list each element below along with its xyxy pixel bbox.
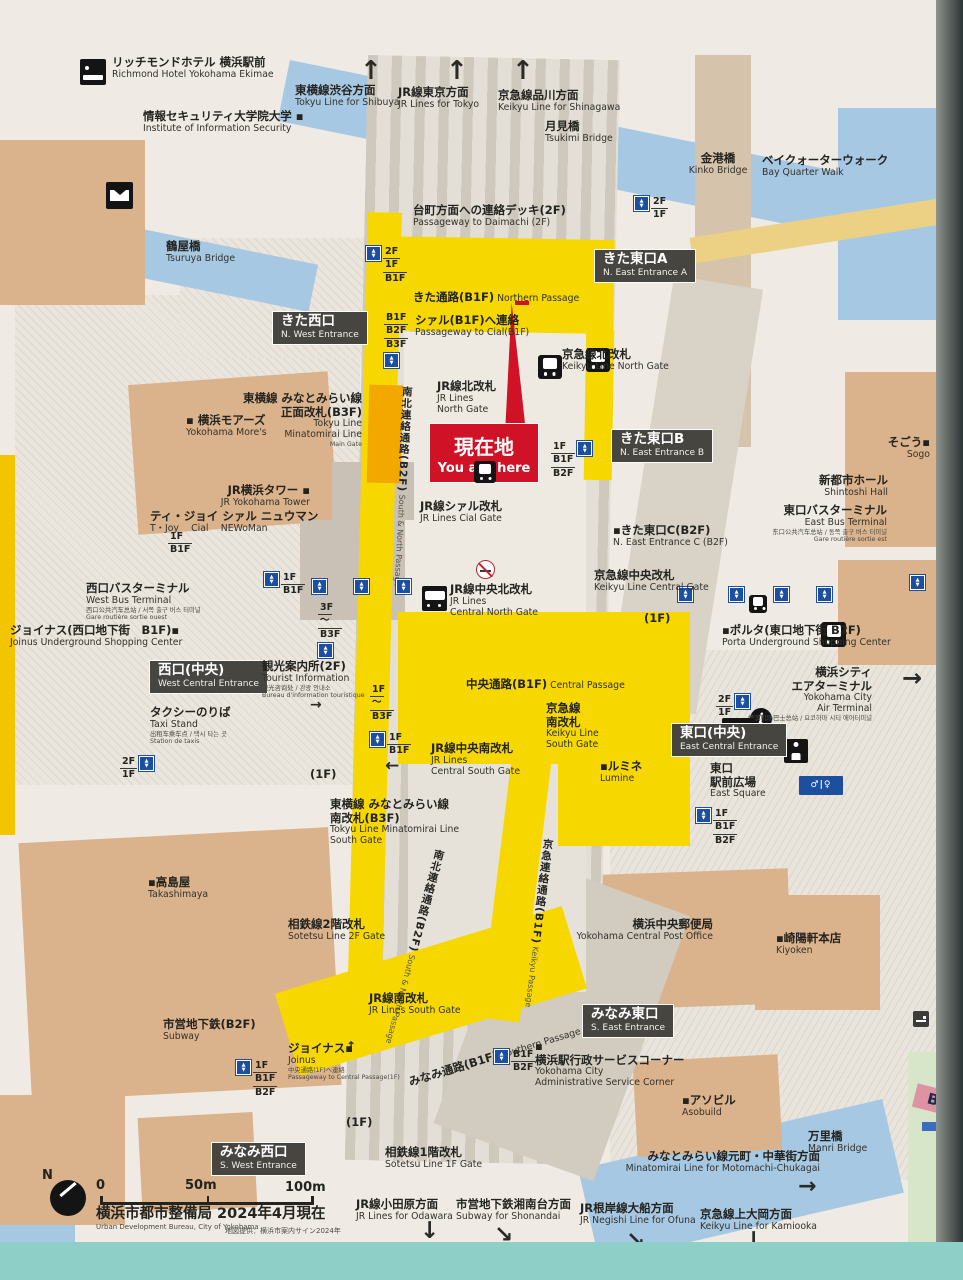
elevator-icon: ▲▼ <box>735 694 750 709</box>
central-passage-label: 中央通路(B1F) Central Passage <box>466 674 625 693</box>
badge-s-east: みなみ東口S. East Entrance <box>583 1005 673 1037</box>
east-bus-terminal-label: 東口バスターミナルEast Bus Terminal东口公共汽车总站 / 동쪽 … <box>772 504 887 543</box>
joinus-south-label: ジョイナス▪Joinus中央通路(1F)へ連絡Passageway to Cen… <box>288 1042 400 1081</box>
elevator-icon: ▲▼ <box>577 441 592 456</box>
floors-cial: B1FB2FB3F▲▼ <box>384 312 408 368</box>
jr-central-south-label: JR線中央南改札JR LinesCentral South Gate <box>431 742 520 778</box>
sotetsu-1f-gate-label: 相鉄線1階改札Sotetsu Line 1F Gate <box>385 1146 482 1171</box>
arrow-up-shinagawa: ↑ <box>512 58 534 84</box>
credit-note: 地図提供：横浜市案内サイン2024年 <box>225 1226 341 1236</box>
elevator-icon: ▲▼ <box>494 1049 509 1064</box>
keikyu-south-gate-label: 京急線南改札Keikyu LineSouth Gate <box>546 702 599 751</box>
sotetsu-2f-gate-label: 相鉄線2階改札Sotetsu Line 2F Gate <box>288 918 385 943</box>
taxi-stand-label: タクシーのりばTaxi Stand出租车乘车点 / 택시 타는 곳Station… <box>150 706 231 745</box>
floors-southern: ▲▼B1FB2F <box>494 1049 535 1075</box>
floors-sw: ▲▼1FB1FB2F <box>236 1060 277 1099</box>
cial-passage-label: シァル(B1F)へ連絡Passageway to Cial(B1F) <box>415 314 529 339</box>
toilet-icon-west-icon: ♂|♀ <box>799 776 843 795</box>
scale-mid: 50m <box>185 1178 217 1193</box>
badge-n-east-b: きた東口BN. East Entrance B <box>612 430 712 462</box>
west-bus-icon <box>422 586 447 611</box>
arrow-up-tokyo: ↑ <box>446 58 468 84</box>
admin-corner-label: ▪横浜駅行政サービスコーナーYokohama CityAdministrativ… <box>535 1040 685 1089</box>
sogo-label: そごう▪Sogo <box>888 436 930 461</box>
building-east-tan <box>838 560 943 665</box>
jr-central-north-label: JR線中央北改札JR LinesCentral North Gate <box>450 583 538 619</box>
map-labels-layer: リッチモンドホテル 横浜駅前Richmond Hotel Yokohama Ek… <box>0 0 963 44</box>
joinus-west-label: ジョイナス(西口地下街 B1F)▪Joinus Underground Shop… <box>10 624 182 649</box>
badge-east-central: 東口(中央)East Central Entrance <box>672 724 786 756</box>
badge-n-east-a: きた東口AN. East Entrance A <box>595 250 695 282</box>
tokyu-main-gate-icon <box>474 461 496 483</box>
lumine-label: ▪ルミネLumine <box>600 760 642 785</box>
jr-south-gate-label: JR線南改札JR Lines South Gate <box>369 992 461 1017</box>
dir-negishi: JR根岸線大船方面JR Negishi Line for Ofuna <box>580 1202 696 1227</box>
dir-jr-tokyo: JR線東京方面JR Lines for Tokyo <box>398 86 479 111</box>
post-office-icon-nw-icon <box>106 182 133 209</box>
scale-full: 100m <box>285 1180 326 1195</box>
northern-passage-label: きた通路(B1F) Northern Passage <box>413 287 579 306</box>
floors-east-b2f: ▲▼1FB1FB2F <box>696 808 737 847</box>
n-east-c-label: ▪きた東口C(B2F)N. East Entrance C (B2F) <box>613 524 728 549</box>
jr-north-gate-label: JR線北改札JR LinesNorth Gate <box>437 380 496 416</box>
wall-below-sign <box>0 1242 963 1280</box>
yokohama-post-label: 横浜中央郵便局Yokohama Central Post Office <box>576 918 713 943</box>
compass-icon <box>50 1180 86 1216</box>
dir-shonandai: 市営地下鉄湘南台方面Subway for Shonandai <box>456 1198 571 1223</box>
smoke-icon-sw-icon <box>913 1011 929 1027</box>
institute-label: 情報セキュリティ大学院大学 ▪Institute of Information … <box>143 110 304 135</box>
floors-jr-south-top: 1F〜B3F <box>370 684 394 723</box>
credit-ja: 横浜市都市整備局 2024年4月現在 <box>96 1202 326 1223</box>
tourist-info-label: 観光案内所(2F)Tourist Information观光咨询处 / 관광 안… <box>262 660 365 699</box>
tsuruya-bridge-label: 鶴屋橋Tsuruya Bridge <box>166 240 235 265</box>
badge-n-west: きた西口N. West Entrance <box>273 312 367 344</box>
station-map-photo: 現在地 You are here リッチモンドホテル 横浜駅前Richmond … <box>0 0 963 1280</box>
tourist-info-arrow: → <box>310 698 322 712</box>
paren-1f-keikyu: (1F) <box>644 612 670 626</box>
wbt-elevator-2-icon: ▲▼ <box>354 579 369 594</box>
paren-2f1f-west: 2F1F▲▼ <box>120 756 154 782</box>
porta-label: ▪ポルタ(東口地下街 B2F)Porta Underground Shoppin… <box>722 624 891 649</box>
west-bus-terminal-label: 西口バスターミナルWest Bus Terminal西口公共汽车总站 / 서쪽 … <box>86 582 201 621</box>
keikyu-north-gate-label: 京急線北改札Keikyu Line North Gate <box>562 348 669 373</box>
ev-central-2-icon: ▲▼ <box>729 587 744 602</box>
dir-keikyu-shinagawa: 京急線品川方面Keikyu Line for Shinagawa <box>498 89 620 114</box>
bay-quarter-label: ベイクォーターウォークBay Quarter Walk <box>762 154 888 179</box>
ev-keikyu-central-icon: ▲▼ <box>910 575 925 590</box>
east-square-label: 東口駅前広場East Square <box>710 762 766 800</box>
wbt-elevator-1-icon: ▲▼ <box>312 579 327 594</box>
scale-zero: 0 <box>96 1178 105 1193</box>
daimachi-deck-label: 台町方面への連絡デッキ(2F)Passageway to Daimachi (2… <box>413 204 566 229</box>
takashimaya-label: ▪高島屋Takashimaya <box>148 876 208 901</box>
jr-central-north-icon-s-icon <box>749 595 767 613</box>
elevator-icon: ▲▼ <box>384 353 399 368</box>
jr-tower-label: JR横浜タワー ▪JR Yokohama Tower <box>221 484 310 509</box>
floors-n-east-b: 1FB1FB2F▲▼ <box>551 441 592 480</box>
hotel-bed-icon <box>80 59 106 85</box>
paren-1f-sotetsu: (1F) <box>346 1116 372 1130</box>
arrow-odawara: ↓ <box>420 1220 439 1243</box>
dir-minatomirai: みなとみらい線元町・中華街方面Minatomirai Line for Moto… <box>626 1150 820 1175</box>
joinus-south-arrow: ↑ <box>346 1040 356 1052</box>
ycat-arrow: → <box>902 666 922 690</box>
arrow-up-shibuya: ↑ <box>360 58 382 84</box>
locker-icon-west-icon <box>784 739 808 763</box>
floors-nw-deck: ▲▼2F1FB1F <box>366 246 407 285</box>
jr-north-gate-icon <box>538 355 562 379</box>
ev-central-4-icon: ▲▼ <box>817 587 832 602</box>
floors-west-terminal: 1FB1F <box>168 531 192 557</box>
elevator-icon: ▲▼ <box>634 196 649 211</box>
building-nw <box>0 140 145 305</box>
elevator-icon: ▲▼ <box>696 808 711 823</box>
badge-s-west: みなみ西口S. West Entrance <box>212 1143 305 1175</box>
elevator-icon: ▲▼ <box>236 1060 251 1075</box>
elevator-icon: ▲▼ <box>139 756 154 771</box>
yokohama-mores-label: ▪ 横浜モアーズYokohama More's <box>186 414 267 439</box>
arrow-minatomirai: → <box>798 1176 816 1198</box>
jr-cial-gate-label: JR線シァル改札JR Lines Cial Gate <box>420 500 502 525</box>
richmond-hotel-label: リッチモンドホテル 横浜駅前Richmond Hotel Yokohama Ek… <box>112 56 274 81</box>
shintoshi-hall-label: 新都市ホールShintoshi Hall <box>819 474 888 499</box>
floors-river-east: ▲▼2F1F <box>634 196 668 222</box>
compass-n-label: N <box>42 1168 53 1183</box>
keikyu-central-gate-label: 京急線中央改札Keikyu Line Central Gate <box>594 569 709 594</box>
subway-label: 市営地下鉄(B2F)Subway <box>163 1018 256 1043</box>
ev-central-3-icon: ▲▼ <box>774 587 789 602</box>
kinko-bridge-label: 金港橋Kinko Bridge <box>689 152 748 177</box>
dir-tokyu-shibuya: 東横線渋谷方面Tokyu Line for Shibuya <box>295 84 400 109</box>
ycat-label: 横浜シティエアターミナルYokohama CityAir Terminal横滨机… <box>748 666 872 722</box>
elevator-icon: ▲▼ <box>370 732 385 747</box>
elevator-icon: ▲▼ <box>318 643 333 658</box>
paren-1f-west: (1F) <box>310 768 336 782</box>
badge-west-central: 西口(中央)West Central Entrance <box>150 661 267 693</box>
tsukimi-bridge-label: 月見橋Tsukimi Bridge <box>545 120 613 145</box>
floors-tokyu-south: ▲▼1FB1F <box>370 732 411 758</box>
elevator-icon: ▲▼ <box>366 246 381 261</box>
nosmoke-icon-west-icon <box>476 560 495 579</box>
wbt-elevator-3-icon: ▲▼ <box>396 579 411 594</box>
you-are-here-ja: 現在地 <box>454 431 514 460</box>
elevator-icon: ▲▼ <box>264 572 279 587</box>
tokyu-south-gate-label: 東横線 みなとみらい線南改札(B3F)Tokyu Line Minatomira… <box>330 798 459 847</box>
sign-right-edge <box>936 0 963 1280</box>
tokyu-south-arrow: ← <box>385 758 399 775</box>
floors-3f-b3f: 3F〜B3F▲▼ <box>318 602 342 658</box>
floors-east-2f1f: 2F1F▲▼ <box>716 694 750 720</box>
asobuild-label: ▪アソビルAsobuild <box>682 1094 736 1119</box>
floors-newoman: ▲▼1FB1F <box>264 572 305 598</box>
kiyoken-label: ▪崎陽軒本店Kiyoken <box>776 932 841 957</box>
